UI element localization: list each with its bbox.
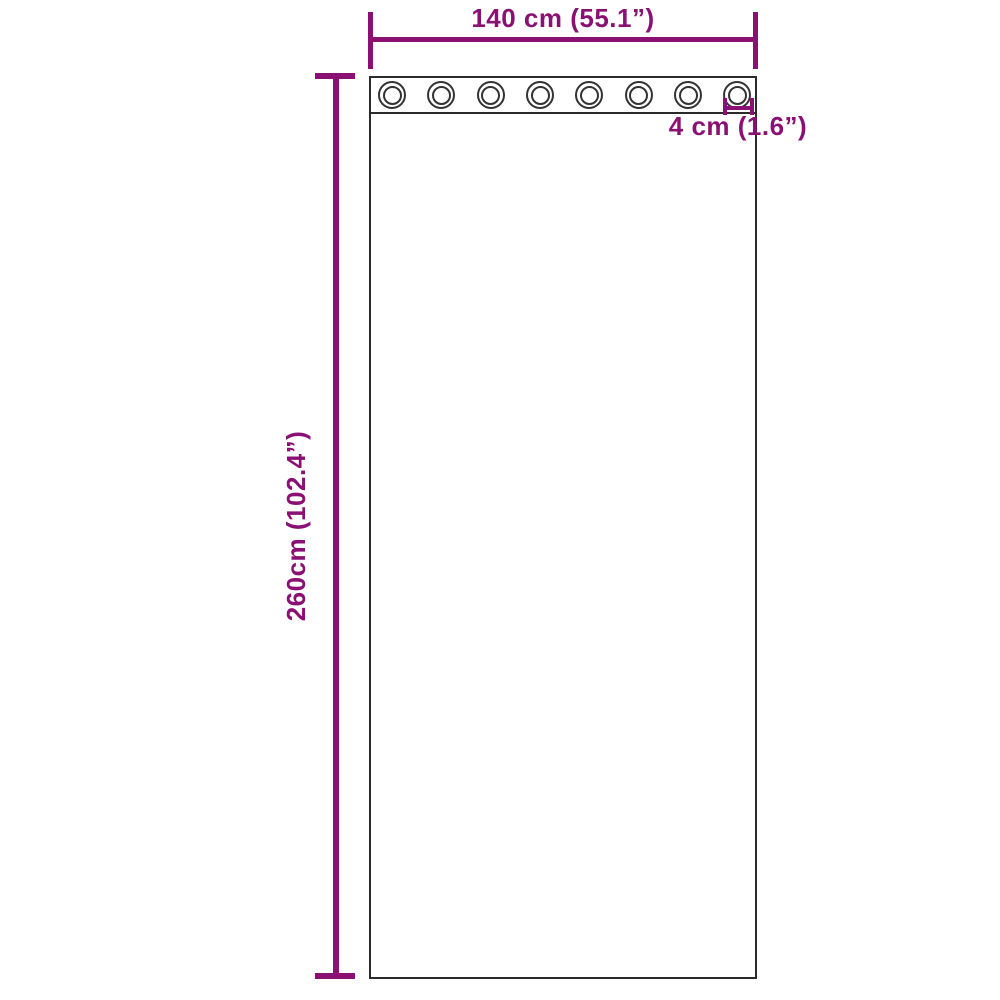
- curtain-dimension-diagram: 140 cm (55.1”) 260cm (102.4”) 4 cm (1.6”…: [0, 0, 1000, 1000]
- grommet-dimension-label: 4 cm (1.6”): [588, 111, 888, 141]
- grommet-eyelet: [625, 81, 653, 109]
- width-dimension-line: [370, 37, 756, 42]
- height-dimension-line: [333, 74, 339, 979]
- height-dimension-tick-bottom: [315, 973, 355, 979]
- grommet-hole: [629, 86, 648, 105]
- grommet-hole: [679, 86, 698, 105]
- grommet-hole: [383, 86, 402, 105]
- width-dimension-label: 140 cm (55.1”): [370, 3, 756, 33]
- grommet-eyelet: [674, 81, 702, 109]
- grommet-eyelet: [378, 81, 406, 109]
- grommet-hole: [531, 86, 550, 105]
- grommet-hole: [580, 86, 599, 105]
- grommet-eyelet: [526, 81, 554, 109]
- grommet-eyelet: [477, 81, 505, 109]
- height-dimension-label: 260cm (102.4”): [279, 326, 313, 726]
- grommet-hole: [432, 86, 451, 105]
- height-dimension-tick-top: [315, 73, 355, 79]
- grommet-hole: [481, 86, 500, 105]
- curtain-panel: [369, 76, 757, 979]
- grommet-hole: [728, 86, 747, 105]
